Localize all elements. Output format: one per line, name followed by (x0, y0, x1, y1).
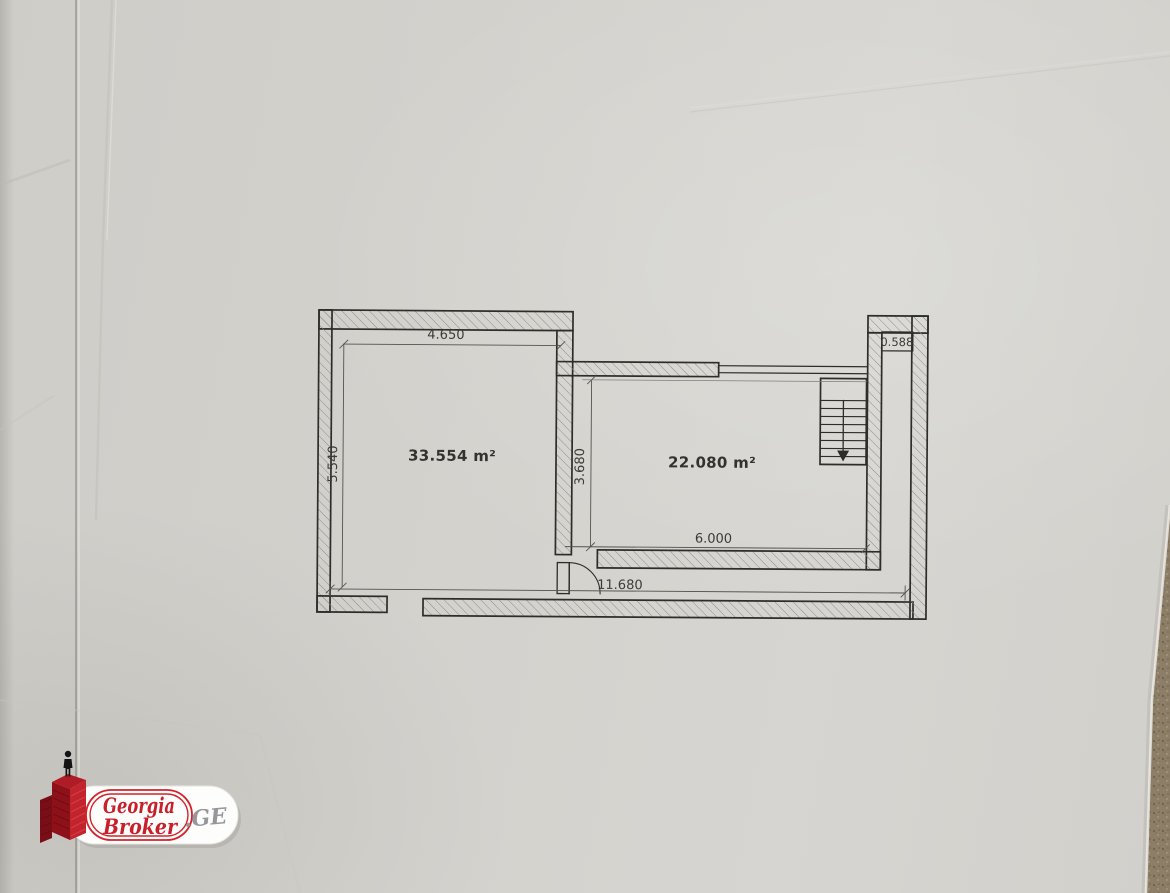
wall-bottom-left-segment (317, 596, 387, 612)
door-arc (569, 563, 600, 594)
wall-shaft-left (866, 333, 882, 570)
photographed-floor-plan-sheet: 4.650 5.540 3.680 6.000 11.680 0.588 33.… (0, 0, 1170, 893)
dim-left-room-width: 4.650 (427, 328, 464, 343)
wall-right-room-top (557, 362, 719, 377)
floor-plan: 4.650 5.540 3.680 6.000 11.680 0.588 33.… (317, 310, 928, 619)
dim-left-room-height: 5.540 (326, 445, 341, 482)
building-icon (40, 774, 86, 843)
brand-suffix-ge: .GE (183, 803, 230, 833)
door-swing (557, 563, 600, 594)
wall-right-room-bottom (597, 550, 880, 570)
door-jamb (557, 563, 569, 594)
dim-partition-height: 3.680 (573, 448, 588, 485)
dim-overall-width: 11.680 (597, 578, 643, 593)
right-room-area-label: 22.080 m² (668, 453, 756, 472)
wall-outer-right (910, 316, 928, 619)
dim-shaft-width: 0.588 (880, 335, 913, 349)
georgia-broker-watermark: Georgia Broker .GE (40, 751, 241, 848)
window-opening-lines (719, 366, 868, 374)
person-icon (64, 751, 73, 777)
staircase-down (820, 378, 867, 464)
dim-right-room-width: 6.000 (695, 532, 732, 547)
paper-edge-and-carpet (1143, 505, 1170, 893)
brand-broker: Broker (102, 814, 179, 839)
floor-plan-scene: 4.650 5.540 3.680 6.000 11.680 0.588 33.… (0, 0, 1170, 893)
wall-bottom-main (423, 599, 913, 619)
left-room-area-label: 33.554 m² (408, 447, 496, 466)
paper-creases (0, 0, 1170, 893)
